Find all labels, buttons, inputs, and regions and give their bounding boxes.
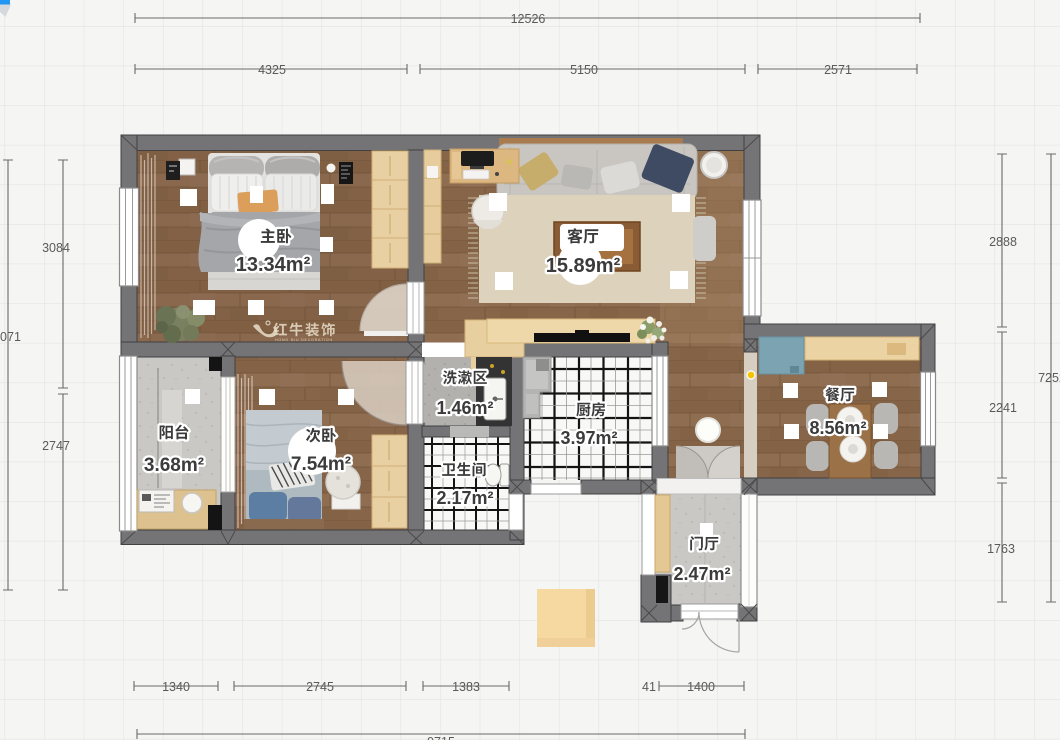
svg-text:1340: 1340: [162, 680, 190, 694]
svg-text:7252: 7252: [1038, 371, 1060, 385]
svg-text:7071: 7071: [0, 330, 21, 344]
svg-text:2241: 2241: [989, 401, 1017, 415]
svg-text:2747: 2747: [42, 439, 70, 453]
svg-text:7.54m²: 7.54m²: [291, 454, 351, 475]
svg-text:8.56m²: 8.56m²: [809, 418, 866, 438]
svg-text:12526: 12526: [511, 12, 546, 26]
svg-text:2.47m²: 2.47m²: [673, 564, 730, 584]
svg-text:3084: 3084: [42, 241, 70, 255]
svg-text:4325: 4325: [258, 63, 286, 77]
svg-text:HONG NIU DECORATION: HONG NIU DECORATION: [275, 338, 333, 342]
svg-text:41: 41: [642, 680, 656, 694]
svg-text:1383: 1383: [452, 680, 480, 694]
svg-text:2745: 2745: [306, 680, 334, 694]
svg-text:3.97m²: 3.97m²: [560, 428, 617, 448]
svg-text:2888: 2888: [989, 235, 1017, 249]
svg-text:3.68m²: 3.68m²: [144, 455, 204, 476]
svg-text:13.34m²: 13.34m²: [236, 254, 311, 276]
svg-text:2.17m²: 2.17m²: [436, 488, 493, 508]
svg-text:1763: 1763: [987, 542, 1015, 556]
svg-text:5150: 5150: [570, 63, 598, 77]
svg-text:2571: 2571: [824, 63, 852, 77]
svg-text:1400: 1400: [687, 680, 715, 694]
svg-text:15.89m²: 15.89m²: [546, 255, 621, 277]
svg-text:9715: 9715: [427, 735, 455, 740]
svg-text:1.46m²: 1.46m²: [436, 398, 493, 418]
